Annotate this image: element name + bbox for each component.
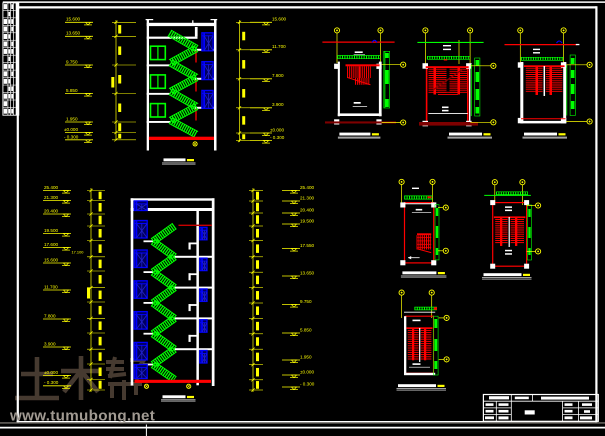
svg-text:15.600: 15.600 — [44, 257, 58, 262]
svg-text:15.600: 15.600 — [272, 17, 286, 22]
svg-text:21.300: 21.300 — [44, 195, 58, 200]
svg-text:21.300: 21.300 — [300, 195, 314, 200]
svg-text:5.850: 5.850 — [300, 327, 312, 332]
svg-text:15.600: 15.600 — [66, 17, 80, 22]
svg-text:7.800: 7.800 — [44, 313, 56, 318]
svg-text:±0.000: ±0.000 — [270, 127, 284, 132]
svg-text:- 0.300: - 0.300 — [270, 135, 285, 140]
svg-text:25.400: 25.400 — [44, 185, 58, 190]
svg-text:19.500: 19.500 — [44, 228, 58, 233]
svg-text:9.750: 9.750 — [300, 299, 312, 304]
svg-text:- 0.300: - 0.300 — [300, 381, 315, 386]
svg-text:±0.000: ±0.000 — [300, 369, 314, 374]
svg-text:3.900: 3.900 — [272, 102, 284, 107]
svg-text:1.950: 1.950 — [300, 354, 312, 359]
svg-text:17.550: 17.550 — [300, 243, 314, 248]
svg-text:25.400: 25.400 — [300, 185, 314, 190]
svg-text:19.500: 19.500 — [300, 218, 314, 223]
svg-text:17.100: 17.100 — [72, 250, 85, 255]
svg-text:1.950: 1.950 — [66, 116, 78, 121]
svg-text:7.800: 7.800 — [272, 73, 284, 78]
svg-text:13.650: 13.650 — [300, 270, 314, 275]
svg-text:17.600: 17.600 — [44, 242, 58, 247]
svg-text:13.650: 13.650 — [66, 31, 80, 36]
svg-text:11.700: 11.700 — [272, 44, 286, 49]
svg-text:9.750: 9.750 — [66, 59, 78, 64]
svg-text:±0.000: ±0.000 — [44, 370, 58, 375]
svg-text:±0.000: ±0.000 — [64, 127, 78, 132]
svg-text:5.850: 5.850 — [66, 88, 78, 93]
svg-text:20.400: 20.400 — [44, 208, 58, 213]
svg-text:www.tumubong.net: www.tumubong.net — [9, 408, 155, 425]
svg-text:- 0.300: - 0.300 — [64, 134, 79, 139]
svg-text:11.700: 11.700 — [44, 284, 58, 289]
svg-text:20.400: 20.400 — [300, 207, 314, 212]
svg-text:- 0.300: - 0.300 — [44, 380, 59, 385]
svg-text:3.900: 3.900 — [44, 341, 56, 346]
